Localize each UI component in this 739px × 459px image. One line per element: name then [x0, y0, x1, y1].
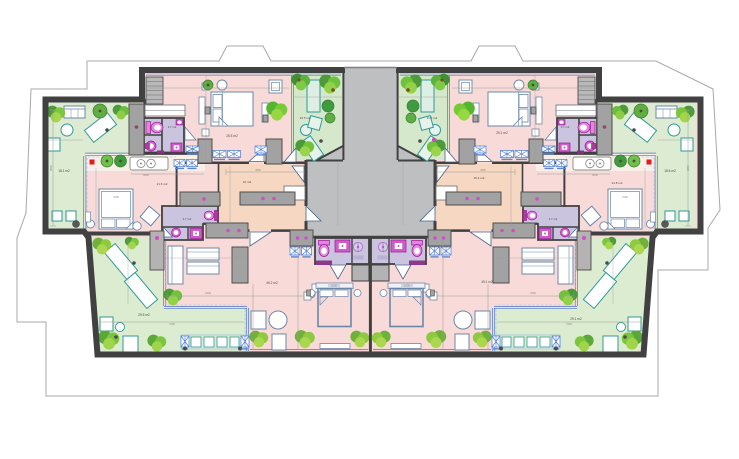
svg-text:10 m2: 10 m2 — [243, 180, 252, 184]
svg-text:7660: 7660 — [566, 322, 572, 326]
svg-text:15.5 m2: 15.5 m2 — [300, 116, 311, 120]
svg-text:6630: 6630 — [592, 173, 598, 177]
svg-text:4340: 4340 — [205, 291, 211, 295]
svg-text:3.7 m2: 3.7 m2 — [168, 125, 177, 129]
svg-text:1600: 1600 — [404, 283, 410, 287]
svg-text:49.1 m2: 49.1 m2 — [481, 280, 493, 284]
svg-text:4.7 m2: 4.7 m2 — [549, 217, 558, 221]
svg-text:29.5 m2: 29.5 m2 — [138, 313, 150, 317]
svg-text:1600: 1600 — [331, 283, 337, 287]
svg-text:4.7 m2: 4.7 m2 — [183, 217, 192, 221]
svg-text:9840: 9840 — [49, 165, 53, 171]
svg-text:4560: 4560 — [255, 168, 261, 172]
svg-text:18.1 m2: 18.1 m2 — [58, 169, 70, 173]
svg-text:25.1 m2: 25.1 m2 — [496, 131, 508, 135]
svg-text:4700: 4700 — [622, 195, 628, 199]
svg-text:21.6 m2: 21.6 m2 — [157, 182, 168, 186]
svg-text:21.8 m2: 21.8 m2 — [612, 181, 623, 185]
svg-text:3.7 m2: 3.7 m2 — [561, 125, 570, 129]
svg-text:29.1 m2: 29.1 m2 — [570, 317, 582, 321]
svg-text:4700: 4700 — [113, 195, 119, 199]
svg-text:15.4 m2: 15.4 m2 — [474, 176, 485, 180]
svg-text:49.2 m2: 49.2 m2 — [266, 281, 278, 285]
svg-text:4560: 4560 — [480, 168, 486, 172]
svg-text:6600: 6600 — [143, 173, 149, 177]
svg-text:4340: 4340 — [530, 291, 536, 295]
svg-text:18.6 m2: 18.6 m2 — [664, 169, 676, 173]
svg-text:26.5 m2: 26.5 m2 — [226, 134, 238, 138]
svg-text:7660: 7660 — [169, 322, 175, 326]
svg-text:9850: 9850 — [686, 165, 690, 171]
svg-text:11.5 m2: 11.5 m2 — [427, 116, 438, 120]
